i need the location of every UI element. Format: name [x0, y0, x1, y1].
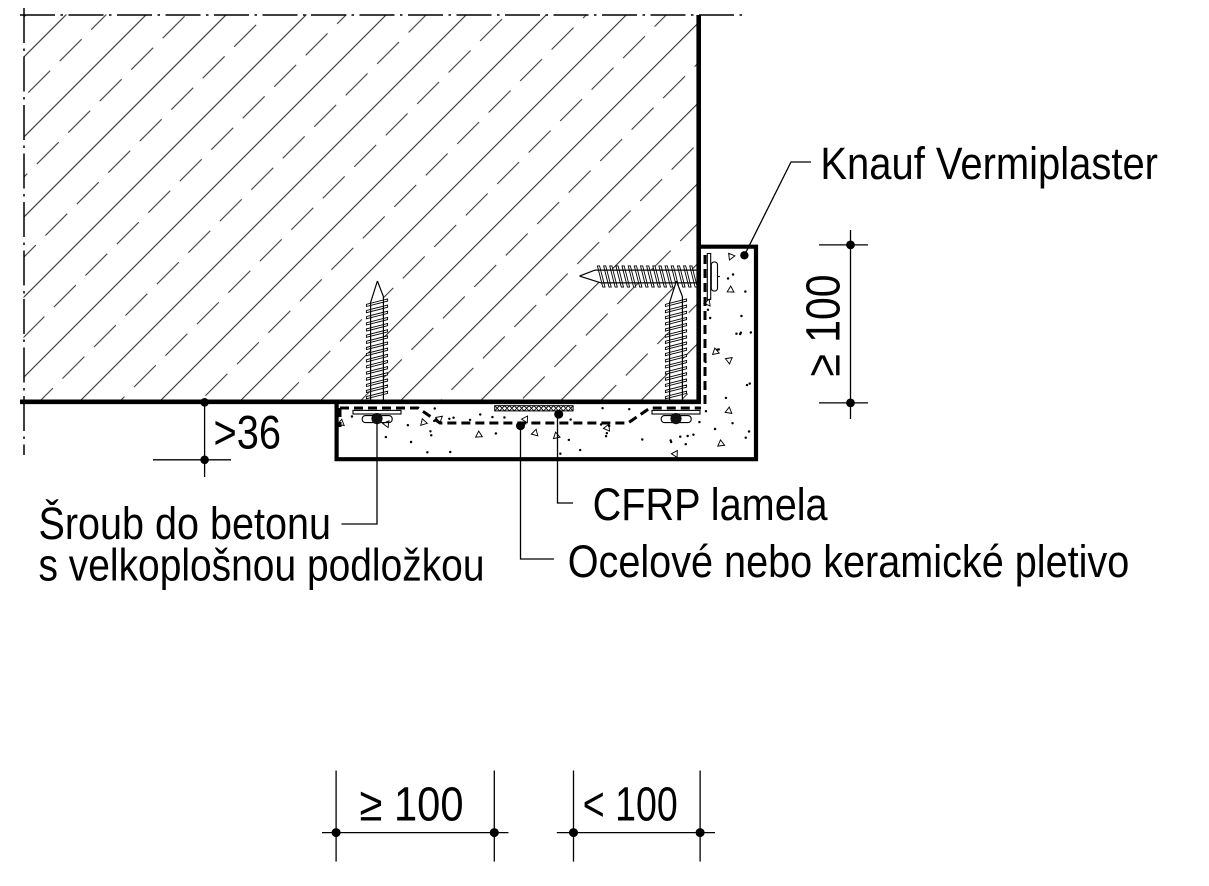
- svg-text:< 100: < 100: [583, 779, 678, 832]
- svg-text:s velkoplošnou podložkou: s velkoplošnou podložkou: [39, 539, 485, 590]
- svg-text:Knauf Vermiplaster: Knauf Vermiplaster: [820, 138, 1158, 189]
- svg-text:≥ 100: ≥ 100: [798, 275, 851, 377]
- svg-text:Ocelové nebo keramické pletivo: Ocelové nebo keramické pletivo: [568, 536, 1130, 587]
- svg-text:>36: >36: [214, 405, 282, 458]
- svg-text:CFRP lamela: CFRP lamela: [593, 479, 829, 530]
- svg-text:≥ 100: ≥ 100: [360, 779, 464, 832]
